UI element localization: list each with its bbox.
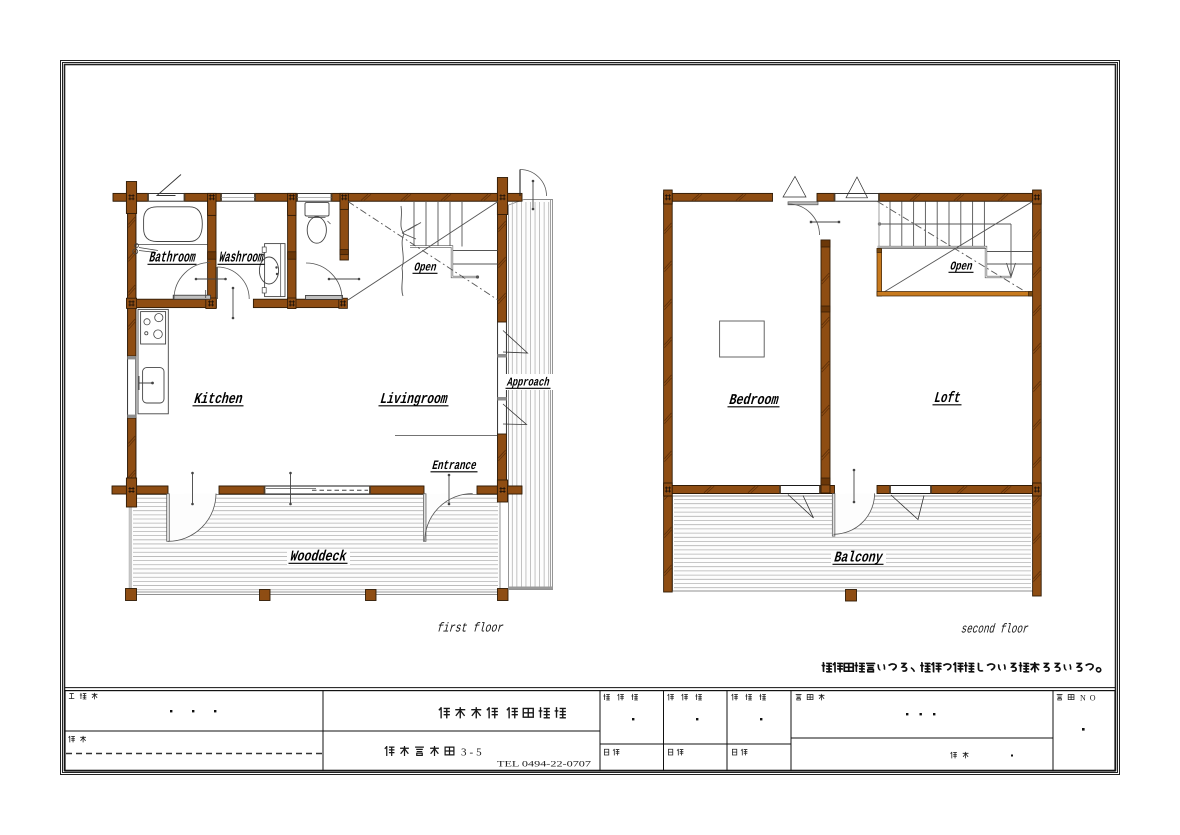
svg-text:second floor: second floor bbox=[961, 622, 1030, 637]
svg-text:3-5: 3-5 bbox=[461, 747, 485, 759]
svg-text:Open: Open bbox=[414, 261, 438, 275]
svg-text:TEL 0494-22-0707: TEL 0494-22-0707 bbox=[497, 759, 591, 769]
svg-text:Open: Open bbox=[950, 260, 974, 274]
svg-text:first floor: first floor bbox=[437, 621, 505, 636]
svg-text:Approach: Approach bbox=[506, 376, 550, 390]
svg-text:NO: NO bbox=[1080, 694, 1100, 703]
svg-text:Entrance: Entrance bbox=[432, 458, 478, 473]
